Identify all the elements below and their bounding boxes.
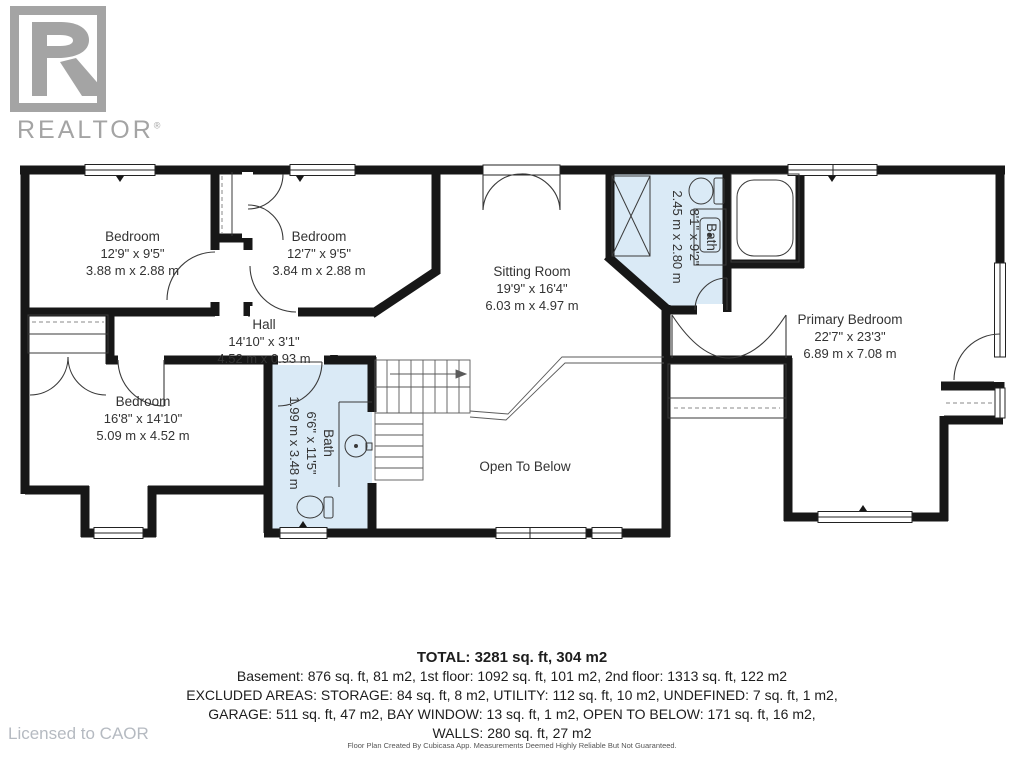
licensed-to: Licensed to CAOR: [8, 724, 149, 744]
room-label-bath-upper: Bath 8'1" x 9'2" 2.45 m x 2.80 m: [666, 162, 720, 312]
room-dims-imperial: 8'1" x 9'2": [686, 162, 703, 312]
room-label-bedroom-top-center: Bedroom 12'7" x 9'5" 3.84 m x 2.88 m: [228, 228, 410, 279]
summary-excluded-1: EXCLUDED AREAS: STORAGE: 84 sq. ft, 8 m2…: [0, 686, 1024, 705]
room-label-bath-lower: Bath 6'6" x 11'5" 1.99 m x 3.48 m: [283, 368, 337, 518]
summary-excluded-2: GARAGE: 511 sq. ft, 47 m2, BAY WINDOW: 1…: [0, 705, 1024, 724]
room-dims-imperial: 6'6" x 11'5": [303, 368, 320, 518]
room-label-open-to-below: Open To Below: [430, 458, 620, 475]
railing: [470, 357, 664, 420]
room-dims-metric: 3.88 m x 2.88 m: [40, 262, 225, 279]
room-dims-metric: 6.03 m x 4.97 m: [438, 297, 626, 314]
room-dims-imperial: 12'9" x 9'5": [40, 245, 225, 262]
room-dims-metric: 3.84 m x 2.88 m: [228, 262, 410, 279]
room-dims-metric: 2.45 m x 2.80 m: [669, 162, 686, 312]
room-dims-metric: 6.89 m x 7.08 m: [758, 345, 942, 362]
room-dims-imperial: 16'8" x 14'10": [50, 410, 236, 427]
room-label-bedroom-lower-left: Bedroom 16'8" x 14'10" 5.09 m x 4.52 m: [50, 393, 236, 444]
area-summary: TOTAL: 3281 sq. ft, 304 m2 Basement: 876…: [0, 648, 1024, 743]
wardrobe-primary: [668, 364, 786, 418]
room-label-sitting-room: Sitting Room 19'9" x 16'4" 6.03 m x 4.97…: [438, 263, 626, 314]
room-label-bedroom-top-left: Bedroom 12'9" x 9'5" 3.88 m x 2.88 m: [40, 228, 225, 279]
room-dims-imperial: 22'7" x 23'3": [758, 328, 942, 345]
summary-total: TOTAL: 3281 sq. ft, 304 m2: [0, 648, 1024, 667]
room-dims-metric: 5.09 m x 4.52 m: [50, 427, 236, 444]
room-dims-imperial: 12'7" x 9'5": [228, 245, 410, 262]
cubicasa-footnote: Floor Plan Created By Cubicasa App. Meas…: [0, 741, 1024, 750]
bathtub: [731, 174, 799, 262]
room-label-hall: Hall 14'10" x 3'1" 4.52 m x 0.93 m: [174, 316, 354, 367]
room-dims-metric: 4.52 m x 0.93 m: [174, 350, 354, 367]
summary-floors: Basement: 876 sq. ft, 81 m2, 1st floor: …: [0, 667, 1024, 686]
closet-middle: [222, 172, 232, 236]
floor-plan-page: { "branding": { "logo_text": "REALTOR", …: [0, 0, 1024, 768]
room-label-primary-bedroom: Primary Bedroom 22'7" x 23'3" 6.89 m x 7…: [758, 311, 942, 362]
room-dims-imperial: 19'9" x 16'4": [438, 280, 626, 297]
closet-left: [28, 315, 108, 353]
room-dims-imperial: 14'10" x 3'1": [174, 333, 354, 350]
room-dims-metric: 1.99 m x 3.48 m: [286, 368, 303, 518]
